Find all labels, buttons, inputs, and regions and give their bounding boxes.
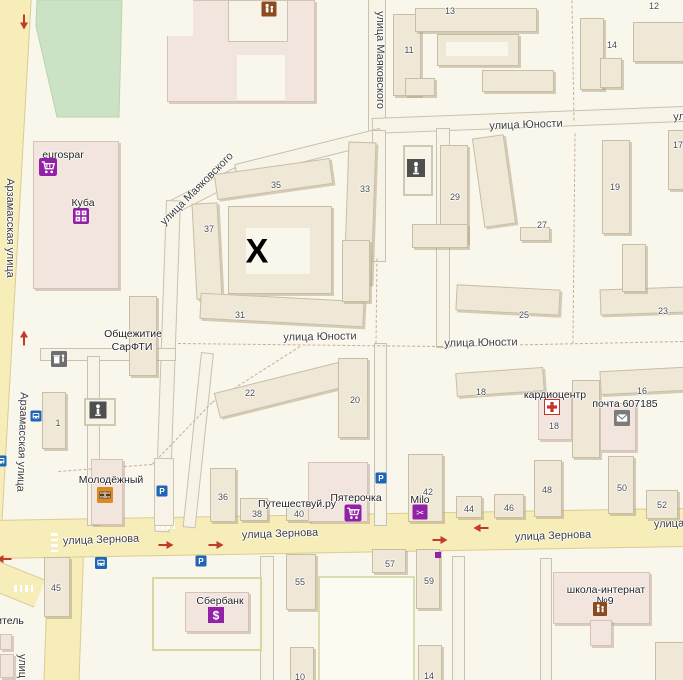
building-number: 33: [360, 184, 370, 194]
cinema-icon[interactable]: [97, 487, 113, 503]
map-canvas[interactable]: улица Маяковскогоулица Маяковскогоулица …: [0, 0, 683, 680]
oneway-arrow-icon: [159, 541, 174, 549]
oneway-arrow-icon: [433, 536, 448, 544]
poi-label: итель: [0, 615, 24, 627]
crossing-marks: [51, 550, 58, 553]
monument-icon[interactable]: [90, 402, 107, 419]
building-number: 14: [607, 40, 617, 50]
building-number: 10: [295, 672, 305, 680]
street-label: ул: [673, 111, 683, 124]
building-number: 36: [218, 492, 228, 502]
street-label: Арзамасская улица: [4, 178, 16, 278]
building-number: 37: [204, 224, 214, 234]
building-number: 25: [519, 310, 529, 320]
building: [0, 654, 14, 678]
road: [452, 556, 465, 680]
svg-text:P: P: [198, 557, 204, 566]
poi-label: Сбербанк: [196, 595, 243, 607]
svg-text:$: $: [213, 609, 220, 623]
crossing-marks: [20, 585, 23, 592]
poi-label: Пятерочка: [330, 492, 381, 504]
building-number: 18: [549, 421, 559, 431]
building: [405, 78, 435, 96]
street-label: улица Юности: [489, 118, 563, 133]
building: [655, 642, 683, 680]
building-number: 31: [235, 310, 245, 320]
post-office-icon[interactable]: [614, 410, 630, 426]
building: [446, 42, 508, 56]
building-number: 12: [649, 1, 659, 11]
bus-stop-icon[interactable]: [0, 456, 7, 467]
crossing-marks: [25, 585, 28, 592]
building: [633, 22, 683, 62]
crossing-marks: [51, 544, 58, 547]
building: [228, 0, 288, 42]
poi-label: Общежитие: [104, 328, 162, 340]
building: [482, 70, 554, 92]
poi-label: СарФТИ: [112, 341, 153, 353]
crossing-marks: [14, 585, 17, 592]
building: [237, 55, 285, 100]
oneway-arrow-icon: [0, 555, 12, 563]
building: [0, 634, 12, 650]
building-number: 19: [610, 182, 620, 192]
road: [540, 558, 552, 680]
waste-container-icon[interactable]: [51, 351, 67, 367]
building-number: 52: [657, 500, 667, 510]
svg-text:P: P: [378, 474, 384, 483]
svg-text:P: P: [159, 487, 165, 496]
oneway-arrow-icon: [474, 524, 489, 532]
building-number: 29: [450, 192, 460, 202]
building: [192, 202, 223, 299]
building-number: 27: [537, 220, 547, 230]
building: [622, 244, 646, 292]
oneway-arrow-icon: [17, 334, 32, 342]
building-number: 59: [424, 576, 434, 586]
street-label: улица Маяковского: [374, 11, 386, 109]
crossing-marks: [51, 533, 58, 536]
svg-text:✂: ✂: [416, 508, 424, 519]
building-number: 48: [542, 485, 552, 495]
road: [260, 556, 274, 680]
building-number: 57: [385, 559, 395, 569]
kuba-mall-icon[interactable]: [73, 208, 89, 224]
bus-stop-icon[interactable]: [31, 411, 42, 422]
parking-icon[interactable]: P: [157, 486, 168, 497]
street-label: улица: [654, 517, 683, 530]
shop-dot-icon[interactable]: [435, 552, 441, 558]
kids-family-icon[interactable]: [262, 2, 277, 17]
building-number: 16: [637, 386, 647, 396]
building-number: 38: [252, 509, 262, 519]
building: [342, 240, 370, 302]
building-number: 20: [350, 395, 360, 405]
school-icon[interactable]: [593, 602, 607, 616]
street-label: улиц: [16, 654, 28, 678]
parking-icon[interactable]: P: [196, 556, 207, 567]
street-label: улица Юности: [444, 336, 517, 349]
oneway-arrow-icon: [209, 541, 224, 549]
building: [600, 58, 622, 88]
building-number: 11: [404, 45, 413, 55]
parking-icon[interactable]: P: [376, 473, 387, 484]
cardiocenter-cross-icon[interactable]: [544, 399, 560, 415]
poi-label: Молодёжный: [79, 474, 144, 486]
building-number: 14: [424, 671, 434, 680]
building: [412, 224, 468, 248]
building-number: 42: [423, 487, 433, 497]
street-label: улица Юности: [283, 330, 356, 343]
pyaterochka-store-icon[interactable]: [345, 505, 362, 522]
building-number: 46: [504, 503, 514, 513]
plot-outline: [318, 576, 415, 680]
building-number: 22: [245, 388, 255, 398]
sberbank-icon[interactable]: $: [208, 607, 224, 623]
building-number: 55: [295, 577, 305, 587]
building-number: 17: [673, 140, 683, 150]
building-number: 18: [476, 387, 486, 397]
crossing-marks: [31, 585, 34, 592]
building-number: 44: [464, 504, 474, 514]
building-number: 13: [445, 6, 455, 16]
poi-label: почта 607185: [592, 398, 657, 410]
building: [42, 392, 66, 449]
oneway-arrow-icon: [17, 18, 32, 26]
x-marker: X: [246, 233, 269, 272]
eurospar-store-icon[interactable]: [39, 158, 57, 176]
building-number: 23: [658, 306, 668, 316]
milo-salon-icon[interactable]: ✂: [413, 505, 428, 520]
building-number: 40: [294, 509, 304, 519]
building: [668, 130, 683, 190]
bus-stop-icon[interactable]: [95, 557, 107, 569]
monument-icon[interactable]: [407, 159, 425, 177]
building: [590, 620, 612, 646]
building-number: 1: [55, 418, 60, 428]
building-number: 50: [617, 483, 627, 493]
building: [167, 0, 193, 36]
building-number: 45: [51, 583, 61, 593]
building-number: 35: [271, 180, 281, 190]
crossing-marks: [51, 539, 58, 542]
building: [455, 284, 560, 315]
building: [415, 8, 537, 32]
